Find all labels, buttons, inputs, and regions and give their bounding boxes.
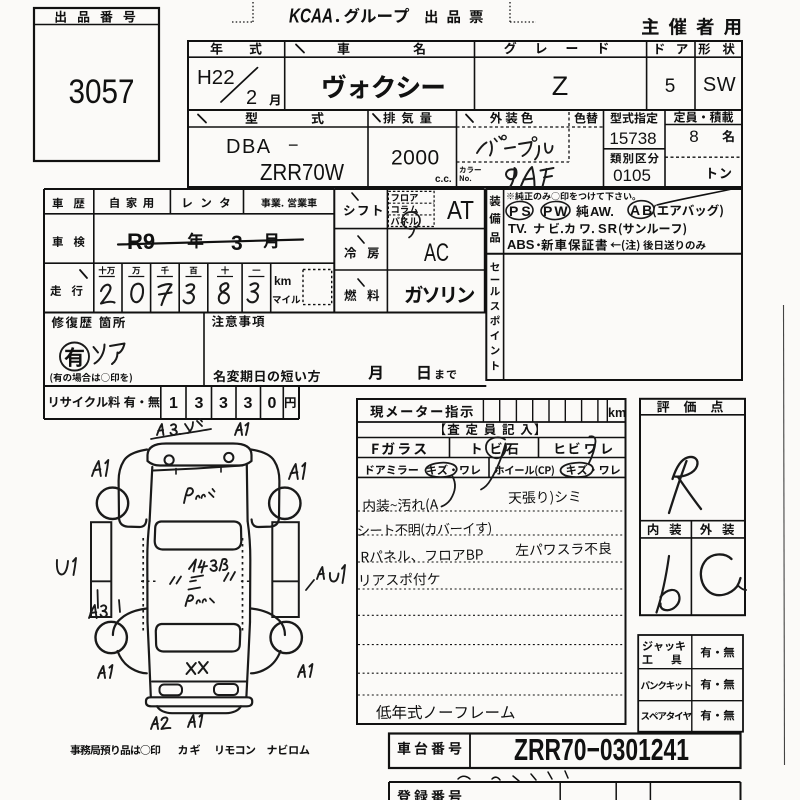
svg-text:2000: 2000 xyxy=(391,147,440,170)
svg-text:ZRR70W: ZRR70W xyxy=(260,159,344,185)
svg-text:Z: Z xyxy=(552,71,569,101)
svg-text:TV.: TV. xyxy=(508,221,527,236)
svg-text:km: km xyxy=(608,406,626,420)
svg-text:5: 5 xyxy=(665,76,676,97)
svg-text:H22: H22 xyxy=(197,66,235,89)
svg-text:R9: R9 xyxy=(127,229,155,254)
svg-text:km: km xyxy=(274,274,291,288)
svg-text:c.c.: c.c. xyxy=(435,174,452,185)
svg-text:3: 3 xyxy=(195,395,204,412)
svg-text:15738: 15738 xyxy=(609,129,656,148)
svg-text:AT: AT xyxy=(447,195,474,225)
svg-text:3: 3 xyxy=(231,232,243,255)
svg-text:AC: AC xyxy=(424,239,449,267)
svg-text:DBA: DBA xyxy=(226,136,272,158)
svg-text:1: 1 xyxy=(169,395,178,412)
svg-text:0105: 0105 xyxy=(613,166,651,185)
svg-text:8: 8 xyxy=(689,127,698,146)
svg-text:KCAA: KCAA xyxy=(289,6,333,28)
svg-text:SW: SW xyxy=(703,74,736,96)
svg-text:−: − xyxy=(288,135,299,155)
svg-text:AW.: AW. xyxy=(590,204,614,219)
svg-text:0: 0 xyxy=(268,395,277,412)
svg-text:3: 3 xyxy=(244,395,253,412)
svg-text:ABS: ABS xyxy=(507,237,535,252)
svg-text:3057: 3057 xyxy=(69,73,135,111)
svg-text:ZRR70−0301241: ZRR70−0301241 xyxy=(514,732,689,767)
svg-text:3: 3 xyxy=(219,395,228,412)
svg-text:2: 2 xyxy=(246,87,257,109)
svg-text:SR: SR xyxy=(598,221,618,236)
